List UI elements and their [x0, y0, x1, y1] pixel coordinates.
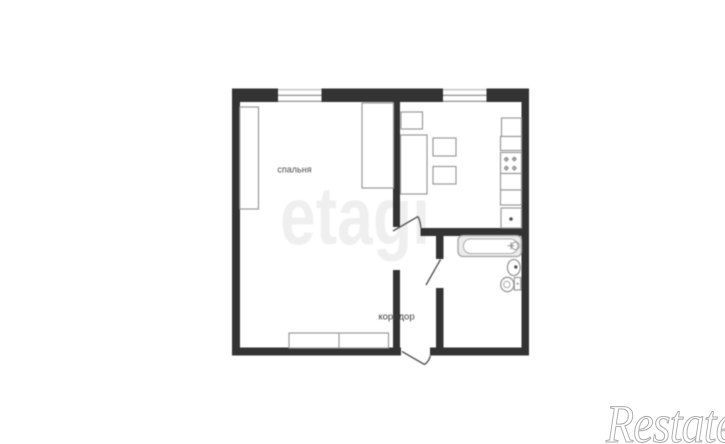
svg-text:спальня: спальня	[277, 164, 311, 174]
svg-text:коридор: коридор	[378, 312, 414, 323]
